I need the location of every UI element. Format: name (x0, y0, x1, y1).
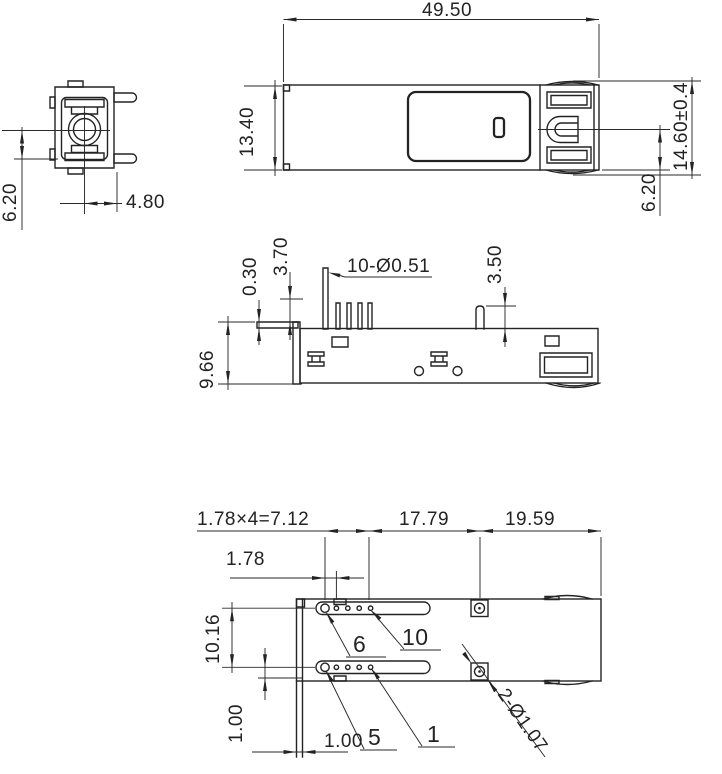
bottom-corner-key (297, 599, 305, 607)
dim-front-pin-offset-label: 4.80 (126, 192, 165, 213)
dim-side-pin-spec-arrow (329, 273, 341, 278)
top-label-window (494, 118, 504, 137)
dim-bottom-pin-pitch: 1.78 (226, 549, 364, 600)
dim-top-overall-length-label: 49.50 (422, 0, 472, 21)
pin-hole-3 (346, 665, 350, 669)
top-emi-slots (547, 92, 591, 163)
dim-side-post-height: 3.50 (485, 245, 516, 347)
pin-hole-1 (368, 665, 372, 669)
pin-label-5: 5 (368, 724, 381, 750)
pin-hole-8 (346, 606, 350, 610)
dim-top-body-width-label: 13.40 (237, 107, 258, 157)
dim-bottom-pitch-total-label: 1.78×4=7.12 (197, 509, 309, 530)
dim-side-lip-thickness-label: 0.30 (240, 257, 261, 296)
pin-hole-10 (368, 606, 372, 610)
pin-hole-7 (334, 606, 338, 610)
pin-hole-2 (357, 665, 361, 669)
dim-bottom-row-edge-label: 1.00 (226, 704, 247, 743)
dim-bottom-row-spacing-lines (222, 602, 315, 673)
dim-side-pin-spec: 10-Ø0.51 (329, 256, 433, 278)
side-front-lip (257, 322, 298, 328)
bottom-body-outline (297, 599, 602, 681)
pin-label-5-arrow (326, 671, 334, 683)
dim-bottom-pin-pitch-lines (230, 571, 364, 600)
dim-front-pin-offset-lines (60, 172, 122, 212)
dim-bottom-pin-to-hole-label: 17.79 (399, 509, 449, 530)
bottom-slot-bottom-pins (321, 663, 373, 671)
dim-side-pin-height-label: 3.70 (271, 237, 292, 276)
pin-label-1: 1 (427, 721, 440, 747)
side-end-recess (540, 353, 592, 377)
side-top-windows (332, 336, 559, 347)
dim-bottom-row-spacing-label: 10.16 (203, 614, 224, 664)
dim-side-body-height-label: 9.66 (197, 350, 218, 389)
dim-bottom-flange-thickness: 1.00 (252, 731, 363, 754)
mount-hole-dot-top (478, 607, 481, 610)
dim-front-pin-offset: 4.80 (60, 172, 165, 213)
dim-side-body-height: 9.66 (197, 316, 302, 390)
side-hole-right (453, 367, 462, 376)
side-view: 0.30 3.70 10-Ø0.51 3.50 9.66 (197, 237, 600, 390)
top-label-recess (408, 92, 530, 161)
front-press-pins (114, 93, 137, 163)
dim-front-port-height: 6.20 (0, 127, 58, 230)
pin-label-6: 6 (353, 631, 366, 657)
side-front-panel (293, 322, 300, 384)
front-view: 6.20 4.80 (0, 81, 165, 230)
dim-side-post-height-label: 3.50 (485, 245, 506, 284)
bottom-spring-arcs (543, 596, 592, 685)
dim-top-latch-offset: 6.20 (602, 125, 670, 216)
dim-side-post-height-lines (486, 287, 516, 347)
dim-bottom-row-spacing: 10.16 (203, 602, 315, 673)
bottom-view: 1.78×4=7.12 17.79 19.59 1.78 10.16 1.00 … (197, 509, 601, 757)
pin-hole-6 (321, 604, 329, 612)
top-body-inner-lines (540, 85, 594, 170)
pin-hole-9 (357, 606, 361, 610)
dim-top-latch-offset-label: 6.20 (639, 173, 660, 212)
mount-hole-dot-bottom (478, 670, 481, 673)
side-hole-left (415, 367, 424, 376)
dim-bottom-hole-spec-label: 2-Ø1.07 (493, 685, 552, 756)
pin-label-10-arrow (372, 611, 382, 621)
technical-drawing-page: 6.20 4.80 49.50 13.40 (0, 0, 722, 774)
pin-hole-5 (321, 663, 329, 671)
dim-top-overall-length-lines (284, 20, 600, 83)
side-post (476, 306, 484, 329)
dim-side-lip-thickness: 0.30 (240, 257, 261, 345)
top-view: 49.50 13.40 14.60±0.4 6.20 (237, 0, 701, 216)
dim-top-body-width: 13.40 (237, 80, 282, 176)
bottom-slot-top-pins (321, 604, 373, 612)
dim-bottom-pin-pitch-label: 1.78 (226, 549, 265, 570)
side-contact-spools (308, 352, 447, 366)
top-corner-keys (284, 85, 290, 170)
pin-label-10: 10 (402, 624, 429, 650)
dim-side-pin-spec-label: 10-Ø0.51 (347, 256, 430, 277)
technical-drawing-canvas: 6.20 4.80 49.50 13.40 (0, 0, 722, 774)
dim-bottom-hole-spec: 2-Ø1.07 (462, 644, 551, 757)
dim-top-overall-width-label: 14.60±0.4 (671, 82, 692, 171)
dim-top-overall-length: 49.50 (284, 0, 600, 82)
dim-bottom-hole-to-end-label: 19.59 (505, 509, 555, 530)
dim-top-overall-width: 14.60±0.4 (573, 77, 701, 179)
dim-front-port-height-label: 6.20 (0, 183, 21, 222)
pin-hole-4 (334, 665, 338, 669)
